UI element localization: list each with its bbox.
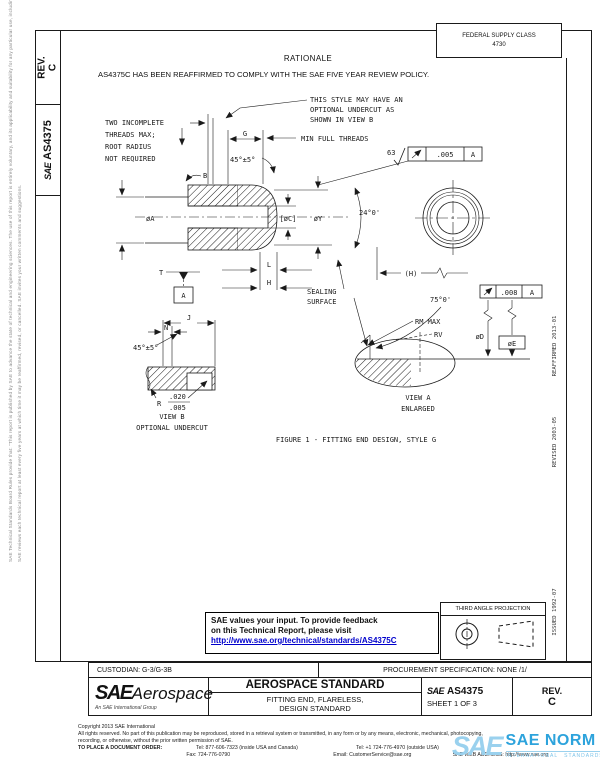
chamfer-b-label: 45°±5° <box>133 344 158 352</box>
rev-box: REV. C <box>35 30 61 105</box>
datum-triangle-icon <box>179 272 188 280</box>
chamfer-top-label: 45°±5° <box>230 156 255 164</box>
sae-aerospace-logo: SAEAerospace An SAE International Group <box>89 678 209 715</box>
dim-b-label: B <box>203 172 207 180</box>
view-a-subtitle: ENLARGED <box>401 405 435 413</box>
doc-title-line2: DESIGN STANDARD <box>279 704 351 713</box>
chamfer-top-callout: 45°±5° <box>230 156 274 173</box>
radius-max: .020 <box>169 393 186 401</box>
fsc-value: 4730 <box>492 41 505 49</box>
rm-max-label: RM MAX <box>415 318 441 326</box>
rationale-text: AS4375C HAS BEEN REAFFIRMED TO COMPLY WI… <box>98 70 558 79</box>
procurement-cell: PROCUREMENT SPECIFICATION: NONE /1/ <box>319 667 591 674</box>
b-callout: B <box>182 128 207 181</box>
sealing-surface-callout: SEALING SURFACE <box>307 260 367 346</box>
fcf-seat-value: .008 <box>501 289 518 297</box>
aerospace-wordmark: Aerospace <box>132 684 213 703</box>
note-style-line1: THIS STYLE MAY HAVE AN <box>310 96 403 104</box>
custodian-row: CUSTODIAN: G-3/G-3B PROCUREMENT SPECIFIC… <box>88 662 592 678</box>
dim-h-label: H <box>267 279 271 287</box>
custodian-cell: CUSTODIAN: G-3/G-3B <box>89 663 319 677</box>
datum-a-label: A <box>181 292 186 300</box>
sealing-surface-line1: SEALING <box>307 288 337 296</box>
dim-g-label: G <box>243 130 247 138</box>
seat-angle-label: 75°0' <box>430 296 451 304</box>
dim-h-ref: (H) <box>377 247 468 280</box>
doc-number-cell: SAE AS4375 SHEET 1 OF 3 <box>422 678 513 715</box>
note-threads-line3: ROOT RADIUS <box>105 143 151 151</box>
fcf-top: 63 .005 A <box>318 147 482 185</box>
note-style-line3: SHOWN IN VIEW B <box>310 116 373 124</box>
doc-type: AEROSPACE STANDARD <box>209 678 421 693</box>
rev-box-text: REV. C <box>37 56 58 78</box>
doc-number-box: SAE AS4375 <box>35 104 61 196</box>
dim-j-label: J <box>187 314 191 322</box>
feedback-line2: on this Technical Report, please visit <box>211 626 433 636</box>
rm-max-callout: RM MAX <box>368 318 441 345</box>
doc-number-vertical-text: AS4375 <box>42 120 54 160</box>
datum-t-label: T <box>159 269 164 277</box>
sae-logo: SAE <box>95 682 132 704</box>
order-label: TO PLACE A DOCUMENT ORDER: <box>78 745 196 752</box>
rev-cell-label: REV. <box>542 686 562 696</box>
projection-title: THIRD ANGLE PROJECTION <box>441 603 545 616</box>
sae-tagline: An SAE International Group <box>95 705 208 711</box>
end-view <box>415 180 491 256</box>
rev-cell-value: C <box>548 696 556 708</box>
view-a-title: VIEW A <box>405 394 431 402</box>
view-a: VIEW A ENLARGED <box>355 332 530 413</box>
note-threads-line2: THREADS MAX; <box>105 131 156 139</box>
rev-label: REV. <box>37 56 48 78</box>
watermark: SAE SAE NORM INTERNATIONAL STANDARDS <box>452 733 600 760</box>
right-margin-divider <box>566 58 567 662</box>
fsc-box: FEDERAL SUPPLY CLASS 4730 <box>436 23 562 58</box>
sheet-label: SHEET 1 OF 3 <box>427 699 512 708</box>
dim-h: H <box>222 279 312 288</box>
sae-logo-small: SAE <box>427 686 444 696</box>
dim-h-ref-label: (H) <box>405 270 418 278</box>
runout-icon-2 <box>484 288 492 295</box>
cone-angle-label: 24°0' <box>359 209 380 217</box>
doc-number: AS4375 <box>447 686 483 697</box>
projection-symbol-icon <box>441 616 545 652</box>
min-full-threads-label: MIN FULL THREADS <box>301 135 368 143</box>
dia-c-label: [øC] <box>280 215 297 223</box>
margin-reaffirmed-date: REAFFIRMED 2013-01 <box>552 300 558 392</box>
copyright-line: Copyright 2013 SAE International <box>78 724 548 731</box>
dim-dia-d: øD <box>476 300 492 356</box>
watermark-sub2: STANDARDS <box>564 753 600 759</box>
feedback-box: SAE values your input. To provide feedba… <box>205 612 439 654</box>
rev-cell: REV. C <box>513 678 591 715</box>
rationale-title: RATIONALE <box>98 54 518 63</box>
dim-l-label: L <box>267 261 271 269</box>
page: { "header": { "rev_label": "REV.", "rev_… <box>0 0 600 776</box>
rev-value: C <box>48 56 59 78</box>
order-fax: Fax: 724-776-0790 <box>186 752 333 759</box>
margin-revised-date: REVISED 2003-05 <box>552 396 558 488</box>
fcf-top-value: .005 <box>437 151 454 159</box>
left-margin-note-1: SAE Technical Standards Board Rules prov… <box>8 92 13 562</box>
fcf-seat-datum: A <box>530 289 535 297</box>
watermark-sub1: INTERNATIONAL <box>506 753 559 759</box>
order-tel2: Tel: +1 724-776-4970 (outside USA) <box>356 745 439 752</box>
note-threads-line1: TWO INCOMPLETE <box>105 119 164 127</box>
fcf-seat: .008 A <box>480 285 542 298</box>
sae-logo-vertical: SAE <box>43 163 53 180</box>
dia-e-label: øE <box>508 340 516 348</box>
radius-min: .005 <box>169 404 186 412</box>
surface-finish-value: 63 <box>387 149 395 157</box>
figure-caption: FIGURE 1 - FITTING END DESIGN, STYLE G <box>276 436 436 444</box>
margin-issued-date: ISSUED 1992-07 <box>552 566 558 658</box>
dia-y-label: øY <box>314 215 323 223</box>
dim-n-label: N <box>164 324 168 332</box>
rv-label: RV <box>434 331 443 339</box>
dim-dia-a: øA <box>116 180 155 260</box>
title-block: SAEAerospace An SAE International Group … <box>88 677 592 716</box>
note-style-line2: OPTIONAL UNDERCUT AS <box>310 106 394 114</box>
order-tel1: Tel: 877-606-7323 (inside USA and Canada… <box>196 745 356 752</box>
note-incomplete-threads: TWO INCOMPLETE THREADS MAX; ROOT RADIUS … <box>105 114 213 184</box>
dim-cone-angle: 24°0' <box>355 188 380 248</box>
runout-icon <box>412 150 421 158</box>
watermark-sae-logo: SAE <box>452 733 502 760</box>
left-column-spacer <box>35 195 61 662</box>
feedback-link[interactable]: http://www.sae.org/technical/standards/A… <box>211 636 397 645</box>
order-email: Email: CustomerService@sae.org <box>333 752 452 759</box>
watermark-name: SAE NORM <box>506 733 600 749</box>
custodian-text: CUSTODIAN: G-3/G-3B <box>97 667 172 674</box>
dim-dia-e: øE <box>499 300 525 356</box>
left-margin-note-2: SAE reviews each technical report at lea… <box>17 92 22 562</box>
title-cell: AEROSPACE STANDARD FITTING END, FLARELES… <box>209 678 422 715</box>
dia-d-label: øD <box>476 333 484 341</box>
note-optional-undercut: THIS STYLE MAY HAVE AN OPTIONAL UNDERCUT… <box>226 96 403 124</box>
view-b: J N 45°±5° R .020 .005 VIEW B OPTIONAL U… <box>133 314 215 432</box>
doc-title-line1: FITTING END, FLARELESS, <box>267 695 364 704</box>
radius-label: R <box>157 400 162 408</box>
view-b-subtitle: OPTIONAL UNDERCUT <box>136 424 208 432</box>
figure-1-drawing: THIS STYLE MAY HAVE AN OPTIONAL UNDERCUT… <box>60 92 566 452</box>
note-threads-line4: NOT REQUIRED <box>105 155 156 163</box>
fsc-title: FEDERAL SUPPLY CLASS <box>462 32 536 40</box>
sealing-surface-line2: SURFACE <box>307 298 337 306</box>
fcf-top-datum: A <box>471 151 476 159</box>
dia-a-label: øA <box>146 215 155 223</box>
doc-number-vertical: SAE AS4375 <box>42 120 54 180</box>
feedback-line1: SAE values your input. To provide feedba… <box>211 616 433 626</box>
datum-t: T A <box>159 269 200 303</box>
view-b-title: VIEW B <box>159 413 184 421</box>
procurement-text: PROCUREMENT SPECIFICATION: NONE /1/ <box>383 667 527 674</box>
projection-box: THIRD ANGLE PROJECTION <box>440 602 546 660</box>
